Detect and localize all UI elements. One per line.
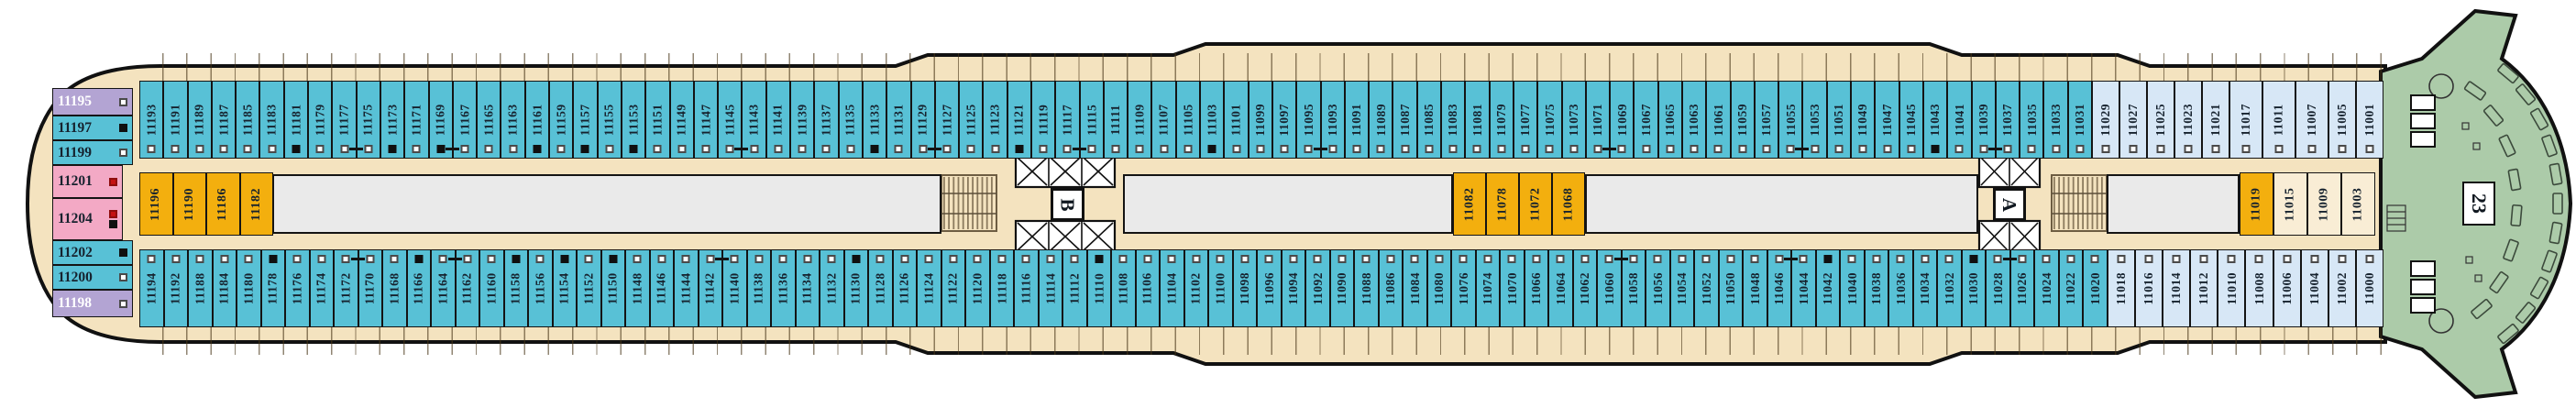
cabin-11072[interactable]: 11072 xyxy=(1519,172,1552,236)
connecting-rooms-mark xyxy=(2003,258,2017,260)
cabin-feature-marker xyxy=(1546,145,1554,153)
cabin-feature-marker xyxy=(2184,145,2192,153)
cabin-11069[interactable]: 11069 xyxy=(1610,81,1634,159)
cabin-11136[interactable]: 11136 xyxy=(771,249,796,327)
cabin-feature-marker xyxy=(1955,145,1964,153)
cabin-11032[interactable]: 11032 xyxy=(1937,249,1962,327)
cabin-11099[interactable]: 11099 xyxy=(1249,81,1272,159)
cabin-11124[interactable]: 11124 xyxy=(917,249,941,327)
cabin-feature-marker xyxy=(1192,255,1200,263)
cabin-11195[interactable]: 11195 xyxy=(52,88,133,116)
cabin-11142[interactable]: 11142 xyxy=(699,249,723,327)
cabin-feature-marker xyxy=(1265,255,1273,263)
cabin-number: 11007 xyxy=(2306,104,2318,137)
cabin-number: 11098 xyxy=(1238,272,1251,305)
cabin-11102[interactable]: 11102 xyxy=(1184,249,1209,327)
cabin-feature-marker xyxy=(2042,255,2051,263)
cabin-11041[interactable]: 11041 xyxy=(1947,81,1971,159)
cabin-feature-marker xyxy=(195,145,204,153)
cabin-11164[interactable]: 11164 xyxy=(431,249,456,327)
cabin-number: 11032 xyxy=(1943,272,1956,305)
cabin-11023[interactable]: 11023 xyxy=(2174,81,2202,159)
cabin-11079[interactable]: 11079 xyxy=(1490,81,1514,159)
cabin-11156[interactable]: 11156 xyxy=(528,249,553,327)
cabin-11009[interactable]: 11009 xyxy=(2307,172,2341,236)
cabin-11127[interactable]: 11127 xyxy=(935,81,959,159)
cabin-11017[interactable]: 11017 xyxy=(2229,81,2262,159)
cabin-11175[interactable]: 11175 xyxy=(357,81,380,159)
cabin-11172[interactable]: 11172 xyxy=(334,249,358,327)
cabin-11022[interactable]: 11022 xyxy=(2059,249,2084,327)
cabin-number: 11137 xyxy=(820,104,833,136)
cabin-11121[interactable]: 11121 xyxy=(1007,81,1031,159)
cabin-feature-marker xyxy=(1087,145,1095,153)
cabin-feature-marker xyxy=(1095,255,1103,263)
cabin-11024[interactable]: 11024 xyxy=(2034,249,2059,327)
cabin-number: 11084 xyxy=(1409,272,1422,305)
cabin-11106[interactable]: 11106 xyxy=(1136,249,1161,327)
cabin-feature-marker xyxy=(654,145,662,153)
cabin-row-starboard: 1119411192111881118411180111781117611174… xyxy=(139,249,2383,327)
cabin-11075[interactable]: 11075 xyxy=(1537,81,1561,159)
cabin-11070[interactable]: 11070 xyxy=(1500,249,1525,327)
cabin-11028[interactable]: 11028 xyxy=(1986,249,2010,327)
cabin-11002[interactable]: 11002 xyxy=(2328,249,2356,327)
cabin-11085[interactable]: 11085 xyxy=(1417,81,1441,159)
cabin-number: 11100 xyxy=(1215,272,1227,304)
cabin-feature-markers xyxy=(119,273,127,281)
cabin-11135[interactable]: 11135 xyxy=(839,81,863,159)
cabin-number: 11165 xyxy=(483,104,496,136)
cabin-11148[interactable]: 11148 xyxy=(625,249,650,327)
lobby-b-letter: B xyxy=(1058,198,1077,211)
cabin-11012[interactable]: 11012 xyxy=(2190,249,2218,327)
cabin-11029[interactable]: 11029 xyxy=(2092,81,2119,159)
cabin-11026[interactable]: 11026 xyxy=(2010,249,2035,327)
cabin-11199[interactable]: 11199 xyxy=(52,140,133,165)
cabin-feature-marker xyxy=(1522,145,1530,153)
cabin-11001[interactable]: 11001 xyxy=(2356,81,2383,159)
cabin-11187[interactable]: 11187 xyxy=(212,81,236,159)
cabin-11049[interactable]: 11049 xyxy=(1851,81,1875,159)
cabin-11059[interactable]: 11059 xyxy=(1731,81,1755,159)
cabin-11036[interactable]: 11036 xyxy=(1888,249,1913,327)
cabin-11089[interactable]: 11089 xyxy=(1369,81,1393,159)
cabin-11034[interactable]: 11034 xyxy=(1913,249,1938,327)
cabin-feature-marker xyxy=(109,210,117,218)
cabin-11193[interactable]: 11193 xyxy=(139,81,163,159)
forward-deck-number-text: 23 xyxy=(2469,193,2489,214)
cabin-feature-marker xyxy=(1071,255,1079,263)
cabin-11151[interactable]: 11151 xyxy=(645,81,669,159)
cabin-11133[interactable]: 11133 xyxy=(863,81,886,159)
cabin-11171[interactable]: 11171 xyxy=(404,81,428,159)
cabin-11093[interactable]: 11093 xyxy=(1321,81,1345,159)
cabin-number: 11187 xyxy=(217,104,230,136)
cabin-feature-marker xyxy=(1240,255,1249,263)
cabin-feature-marker xyxy=(1823,255,1832,263)
cabin-11165[interactable]: 11165 xyxy=(477,81,501,159)
cabin-11194[interactable]: 11194 xyxy=(139,249,164,327)
cabin-11168[interactable]: 11168 xyxy=(382,249,407,327)
cabin-11163[interactable]: 11163 xyxy=(501,81,524,159)
cabin-feature-marker xyxy=(1932,145,1940,153)
cabin-11176[interactable]: 11176 xyxy=(285,249,310,327)
cabin-11076[interactable]: 11076 xyxy=(1451,249,1476,327)
cabin-number: 11071 xyxy=(1591,104,1604,137)
cabin-11111[interactable]: 11111 xyxy=(1104,81,1128,159)
cabin-11025[interactable]: 11025 xyxy=(2147,81,2174,159)
cabin-11160[interactable]: 11160 xyxy=(479,249,504,327)
cabin-number: 11076 xyxy=(1458,272,1470,305)
cabin-11130[interactable]: 11130 xyxy=(844,249,869,327)
cabin-feature-marker xyxy=(2144,255,2152,263)
cabin-11020[interactable]: 11020 xyxy=(2083,249,2108,327)
cabin-11107[interactable]: 11107 xyxy=(1151,81,1175,159)
cabin-11056[interactable]: 11056 xyxy=(1646,249,1670,327)
cabin-11086[interactable]: 11086 xyxy=(1379,249,1404,327)
cabin-11033[interactable]: 11033 xyxy=(2043,81,2067,159)
cabin-11084[interactable]: 11084 xyxy=(1403,249,1427,327)
cabin-number: 11011 xyxy=(2273,104,2285,136)
cabin-11091[interactable]: 11091 xyxy=(1345,81,1369,159)
cabin-11137[interactable]: 11137 xyxy=(814,81,838,159)
cabin-11054[interactable]: 11054 xyxy=(1670,249,1695,327)
cabin-11132[interactable]: 11132 xyxy=(820,249,844,327)
cabin-11060[interactable]: 11060 xyxy=(1597,249,1622,327)
cabin-11134[interactable]: 11134 xyxy=(796,249,820,327)
cabin-11066[interactable]: 11066 xyxy=(1525,249,1549,327)
interior-cabins-forward: 11019110151100911003 xyxy=(2240,172,2375,236)
cabin-number: 11082 xyxy=(1463,187,1476,221)
cabin-number: 11039 xyxy=(1977,104,1990,137)
cabin-11179[interactable]: 11179 xyxy=(308,81,332,159)
cabin-feature-marker xyxy=(196,255,204,263)
cabin-feature-markers xyxy=(119,124,127,132)
cabin-11162[interactable]: 11162 xyxy=(456,249,480,327)
cabin-number: 11144 xyxy=(680,272,693,304)
cabin-11158[interactable]: 11158 xyxy=(504,249,529,327)
cabin-11081[interactable]: 11081 xyxy=(1465,81,1489,159)
cabin-number: 11062 xyxy=(1579,272,1591,305)
cabin-number: 11130 xyxy=(850,272,863,304)
cabin-11196[interactable]: 11196 xyxy=(139,172,173,236)
cabin-feature-marker xyxy=(726,145,734,153)
cabin-11088[interactable]: 11088 xyxy=(1354,249,1379,327)
cabin-11184[interactable]: 11184 xyxy=(213,249,237,327)
cabin-11065[interactable]: 11065 xyxy=(1658,81,1682,159)
cabin-11146[interactable]: 11146 xyxy=(650,249,675,327)
cabin-11098[interactable]: 11098 xyxy=(1233,249,1258,327)
cabin-11057[interactable]: 11057 xyxy=(1755,81,1778,159)
cabin-11110[interactable]: 11110 xyxy=(1087,249,1112,327)
cabin-number: 11133 xyxy=(868,104,881,136)
connecting-rooms-mark xyxy=(1614,258,1628,260)
cabin-11061[interactable]: 11061 xyxy=(1706,81,1730,159)
cabin-11190[interactable]: 11190 xyxy=(173,172,207,236)
cabin-11128[interactable]: 11128 xyxy=(868,249,893,327)
cabin-11105[interactable]: 11105 xyxy=(1176,81,1200,159)
cabin-11109[interactable]: 11109 xyxy=(1128,81,1151,159)
cabin-feature-marker xyxy=(1629,255,1637,263)
cabin-11052[interactable]: 11052 xyxy=(1694,249,1719,327)
cabin-11043[interactable]: 11043 xyxy=(1923,81,1947,159)
cabin-number: 11040 xyxy=(1846,272,1859,305)
cabin-11185[interactable]: 11185 xyxy=(236,81,259,159)
cabin-11153[interactable]: 11153 xyxy=(622,81,645,159)
cabin-feature-marker xyxy=(2004,145,2012,153)
cabin-11094[interactable]: 11094 xyxy=(1282,249,1306,327)
cabin-11159[interactable]: 11159 xyxy=(549,81,573,159)
cabin-feature-marker xyxy=(750,145,758,153)
cabin-11112[interactable]: 11112 xyxy=(1062,249,1087,327)
cabin-11074[interactable]: 11074 xyxy=(1476,249,1501,327)
cabin-11077[interactable]: 11077 xyxy=(1514,81,1537,159)
cabin-11008[interactable]: 11008 xyxy=(2245,249,2273,327)
cabin-11103[interactable]: 11103 xyxy=(1200,81,1224,159)
cabin-feature-marker xyxy=(414,255,423,263)
cabin-11166[interactable]: 11166 xyxy=(407,249,432,327)
cabin-11140[interactable]: 11140 xyxy=(722,249,747,327)
cabin-feature-marker xyxy=(2018,255,2026,263)
cabin-11096[interactable]: 11096 xyxy=(1257,249,1282,327)
cabin-number: 11003 xyxy=(2352,187,2365,221)
cabin-11119[interactable]: 11119 xyxy=(1031,81,1055,159)
cabin-feature-marker xyxy=(1883,145,1891,153)
cabin-11191[interactable]: 11191 xyxy=(163,81,187,159)
cabin-11104[interactable]: 11104 xyxy=(1160,249,1184,327)
cabin-11170[interactable]: 11170 xyxy=(358,249,383,327)
cabin-11197[interactable]: 11197 xyxy=(52,116,133,140)
cabin-11063[interactable]: 11063 xyxy=(1682,81,1706,159)
cabin-feature-marker xyxy=(317,255,325,263)
cabin-number: 11169 xyxy=(435,104,447,136)
cabin-11116[interactable]: 11116 xyxy=(1014,249,1039,327)
cabin-11005[interactable]: 11005 xyxy=(2328,81,2356,159)
cabin-11123[interactable]: 11123 xyxy=(983,81,1007,159)
cabin-11150[interactable]: 11150 xyxy=(601,249,626,327)
cabin-11202[interactable]: 11202 xyxy=(52,240,133,265)
cabin-number: 11088 xyxy=(1360,272,1373,305)
cabin-11115[interactable]: 11115 xyxy=(1080,81,1104,159)
cabin-11040[interactable]: 11040 xyxy=(1840,249,1865,327)
cabin-feature-marker xyxy=(2228,255,2236,263)
connecting-rooms-mark xyxy=(928,148,941,150)
cabin-11181[interactable]: 11181 xyxy=(284,81,308,159)
cabin-11180[interactable]: 11180 xyxy=(237,249,261,327)
cabin-number: 11065 xyxy=(1664,104,1677,137)
cabin-11027[interactable]: 11027 xyxy=(2119,81,2147,159)
cabin-11031[interactable]: 11031 xyxy=(2068,81,2092,159)
cabin-11100[interactable]: 11100 xyxy=(1208,249,1233,327)
cabin-11174[interactable]: 11174 xyxy=(310,249,335,327)
cabin-11044[interactable]: 11044 xyxy=(1791,249,1816,327)
corridor xyxy=(1585,174,1978,234)
cabin-11201[interactable]: 11201 xyxy=(52,165,123,198)
cabin-feature-marker xyxy=(967,145,975,153)
cabin-11014[interactable]: 11014 xyxy=(2163,249,2190,327)
cabin-feature-marker xyxy=(754,255,763,263)
cabin-11045[interactable]: 11045 xyxy=(1899,81,1923,159)
cabin-11016[interactable]: 11016 xyxy=(2135,249,2163,327)
cabin-11068[interactable]: 11068 xyxy=(1552,172,1585,236)
cabin-11038[interactable]: 11038 xyxy=(1865,249,1889,327)
cabin-11000[interactable]: 11000 xyxy=(2356,249,2383,327)
cabin-11004[interactable]: 11004 xyxy=(2301,249,2328,327)
cabin-11192[interactable]: 11192 xyxy=(164,249,189,327)
cabin-11157[interactable]: 11157 xyxy=(573,81,597,159)
cabin-number: 11089 xyxy=(1375,104,1388,137)
cabin-11200[interactable]: 11200 xyxy=(52,265,133,290)
cabin-11178[interactable]: 11178 xyxy=(261,249,286,327)
cabin-11155[interactable]: 11155 xyxy=(598,81,622,159)
cabin-number: 11181 xyxy=(290,104,303,136)
cabin-feature-marker xyxy=(119,98,127,106)
cabin-feature-marker xyxy=(2102,145,2110,153)
cabin-11062[interactable]: 11062 xyxy=(1573,249,1598,327)
cabin-11198[interactable]: 11198 xyxy=(52,290,133,317)
cabin-11144[interactable]: 11144 xyxy=(674,249,699,327)
cabin-11007[interactable]: 11007 xyxy=(2295,81,2328,159)
cabin-11048[interactable]: 11048 xyxy=(1743,249,1767,327)
cabin-feature-marker xyxy=(701,145,710,153)
cabin-feature-marker xyxy=(269,255,277,263)
cabin-11050[interactable]: 11050 xyxy=(1719,249,1744,327)
cabin-feature-marker xyxy=(1714,145,1723,153)
cabin-11090[interactable]: 11090 xyxy=(1330,249,1355,327)
cabin-number: 11190 xyxy=(183,188,196,221)
cabin-11139[interactable]: 11139 xyxy=(790,81,814,159)
cabin-11183[interactable]: 11183 xyxy=(259,81,283,159)
cabin-11149[interactable]: 11149 xyxy=(670,81,694,159)
cabin-11173[interactable]: 11173 xyxy=(380,81,404,159)
cabin-11161[interactable]: 11161 xyxy=(525,81,549,159)
cabin-11003[interactable]: 11003 xyxy=(2341,172,2375,236)
cabin-11018[interactable]: 11018 xyxy=(2108,249,2135,327)
cabin-11167[interactable]: 11167 xyxy=(453,81,477,159)
cabin-11037[interactable]: 11037 xyxy=(1996,81,2020,159)
cabin-11143[interactable]: 11143 xyxy=(742,81,765,159)
cabin-number: 11064 xyxy=(1555,272,1568,305)
cabin-feature-marker xyxy=(119,149,127,157)
cabin-11182[interactable]: 11182 xyxy=(240,172,274,236)
cabin-11141[interactable]: 11141 xyxy=(766,81,790,159)
cabin-number: 11120 xyxy=(972,272,985,304)
cabin-11078[interactable]: 11078 xyxy=(1486,172,1519,236)
cabin-11058[interactable]: 11058 xyxy=(1622,249,1646,327)
cabin-11126[interactable]: 11126 xyxy=(893,249,918,327)
cabin-11097[interactable]: 11097 xyxy=(1272,81,1296,159)
cabin-feature-marker xyxy=(1897,255,1905,263)
cabin-11120[interactable]: 11120 xyxy=(965,249,990,327)
cabin-11092[interactable]: 11092 xyxy=(1305,249,1330,327)
cabin-11131[interactable]: 11131 xyxy=(886,81,910,159)
cabin-11186[interactable]: 11186 xyxy=(206,172,240,236)
cabin-11030[interactable]: 11030 xyxy=(1962,249,1987,327)
cabin-number: 11179 xyxy=(314,104,326,136)
cabin-11073[interactable]: 11073 xyxy=(1562,81,1586,159)
cabin-number: 11194 xyxy=(146,272,159,304)
cabin-11083[interactable]: 11083 xyxy=(1441,81,1465,159)
cabin-feature-marker xyxy=(1046,255,1054,263)
cabin-11010[interactable]: 11010 xyxy=(2218,249,2245,327)
cabin-feature-marker xyxy=(1377,145,1385,153)
cabin-number: 11057 xyxy=(1760,104,1773,137)
cabin-11035[interactable]: 11035 xyxy=(2020,81,2043,159)
cabin-column-aft: 1119511197111991120111204112021120011198 xyxy=(52,88,133,317)
cabin-feature-marker xyxy=(171,255,180,263)
interior-cabins-mid: 11082110781107211068 xyxy=(1453,172,1585,236)
cabin-number: 11138 xyxy=(753,272,765,304)
cabin-feature-markers xyxy=(119,98,127,106)
cabin-11101[interactable]: 11101 xyxy=(1224,81,1248,159)
cabin-number: 11014 xyxy=(2170,272,2183,305)
cabin-feature-marker xyxy=(1618,145,1626,153)
cabin-11204[interactable]: 11204 xyxy=(52,198,123,240)
cabin-11147[interactable]: 11147 xyxy=(694,81,718,159)
cabin-row-port: 1119311191111891118711185111831118111179… xyxy=(139,81,2383,159)
cabin-feature-marker xyxy=(1763,145,1771,153)
cabin-11087[interactable]: 11087 xyxy=(1393,81,1416,159)
cabin-11051[interactable]: 11051 xyxy=(1827,81,1851,159)
cabin-11042[interactable]: 11042 xyxy=(1816,249,1841,327)
cabin-11152[interactable]: 11152 xyxy=(577,249,601,327)
cabin-number: 11024 xyxy=(2041,272,2053,305)
cabin-11019[interactable]: 11019 xyxy=(2240,172,2273,236)
cabin-11125[interactable]: 11125 xyxy=(959,81,983,159)
cabin-11082[interactable]: 11082 xyxy=(1453,172,1486,236)
cabin-number: 11000 xyxy=(2363,272,2376,305)
cabin-11021[interactable]: 11021 xyxy=(2202,81,2229,159)
connecting-rooms-mark xyxy=(1784,258,1798,260)
cabin-11047[interactable]: 11047 xyxy=(1875,81,1899,159)
cabin-number: 11108 xyxy=(1117,272,1130,304)
cabin-11011[interactable]: 11011 xyxy=(2262,81,2295,159)
cabin-11122[interactable]: 11122 xyxy=(941,249,966,327)
cabin-number: 11164 xyxy=(437,272,450,304)
cabin-number: 11026 xyxy=(2016,272,2029,305)
cabin-feature-marker xyxy=(1872,255,1880,263)
interior-cabins-aft: 11196111901118611182 xyxy=(139,172,273,236)
cabin-11189[interactable]: 11189 xyxy=(188,81,212,159)
cabin-11015[interactable]: 11015 xyxy=(2273,172,2307,236)
cabin-number: 11073 xyxy=(1568,104,1580,137)
cabin-feature-marker xyxy=(1751,255,1759,263)
cabin-11080[interactable]: 11080 xyxy=(1427,249,1452,327)
cabin-feature-marker xyxy=(1921,255,1929,263)
cabin-11154[interactable]: 11154 xyxy=(553,249,578,327)
cabin-feature-marker xyxy=(560,255,568,263)
balcony-band-top xyxy=(139,53,2383,81)
cabin-number: 11141 xyxy=(772,104,785,136)
cabin-number: 11051 xyxy=(1833,104,1845,137)
cabin-11053[interactable]: 11053 xyxy=(1802,81,1826,159)
cabin-11114[interactable]: 11114 xyxy=(1039,249,1063,327)
cabin-11067[interactable]: 11067 xyxy=(1634,81,1657,159)
cabin-11138[interactable]: 11138 xyxy=(747,249,772,327)
cabin-feature-markers xyxy=(119,248,127,257)
cabin-11118[interactable]: 11118 xyxy=(990,249,1015,327)
cabin-11064[interactable]: 11064 xyxy=(1548,249,1573,327)
cabin-11006[interactable]: 11006 xyxy=(2273,249,2301,327)
cabin-number: 11033 xyxy=(2050,104,2063,137)
cabin-11108[interactable]: 11108 xyxy=(1111,249,1136,327)
cabin-11046[interactable]: 11046 xyxy=(1767,249,1792,327)
cabin-11188[interactable]: 11188 xyxy=(188,249,213,327)
cabin-feature-marker xyxy=(389,145,397,153)
cabin-number: 11058 xyxy=(1627,272,1640,305)
cabin-number: 11107 xyxy=(1158,104,1171,136)
